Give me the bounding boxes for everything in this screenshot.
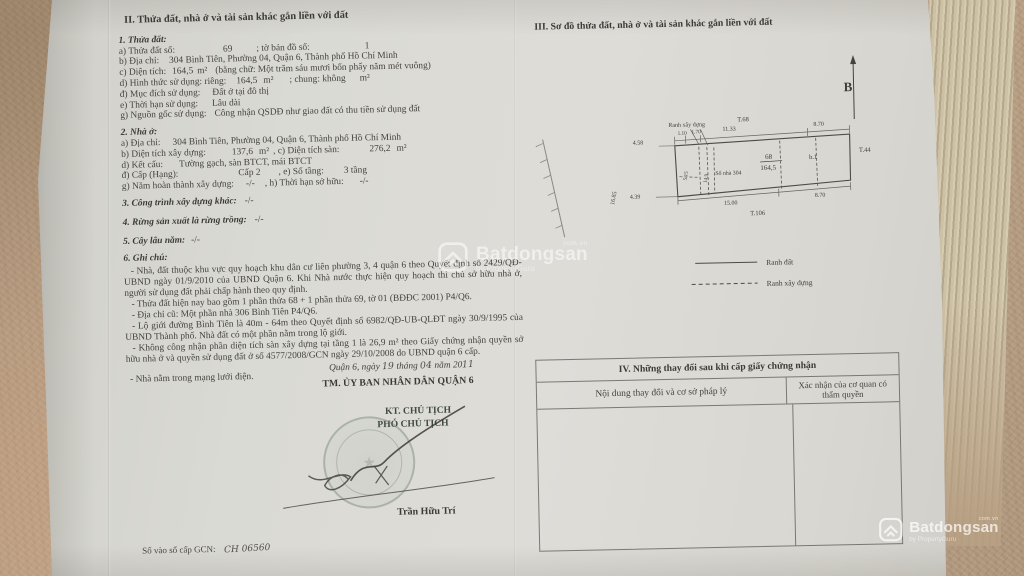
field-label: b) Địa chỉ: [119, 56, 159, 67]
plot-number: 68 [765, 153, 773, 161]
empty-cell-confirmation [793, 402, 902, 545]
field-value: 276,2 [369, 144, 390, 154]
dim: 1.10 [677, 131, 687, 137]
field-label: đ) Cấp (Hạng): [122, 170, 179, 181]
field-label: d) Kết cấu: [121, 160, 163, 171]
field-value: -/- [191, 235, 200, 245]
changes-table: IV. Những thay đổi sau khi cấp giấy chứn… [535, 352, 903, 552]
field-label: , c) Diện tích sàn: [273, 145, 340, 157]
authority-line: TM. ỦY BAN NHÂN DÂN QUẬN 6 [322, 376, 473, 390]
section-perennial: 5. Cây lâu năm:-/- [123, 227, 521, 247]
house-number-label: Số nhà 304 [715, 169, 741, 177]
dim: 15.00 [724, 200, 738, 206]
field-label: g) Nguồn gốc sử dụng: [120, 109, 207, 121]
unit: m² [263, 75, 273, 85]
legend-build-boundary: Ranh xây dựng [767, 278, 813, 288]
field-label: c) Diện tích: [119, 67, 166, 78]
field-label: ; chung: không [289, 74, 345, 85]
dim: 8.70 [813, 122, 824, 128]
parcel-bottom-label: T.106 [750, 210, 766, 217]
field-label: g) Năm hoàn thành xây dựng: [122, 180, 234, 193]
sub-parcel-label: b.1 [809, 154, 817, 161]
field-label: a) Thửa đất số: [119, 45, 175, 56]
field-value: -/- [255, 215, 264, 225]
signature-block: - Nhà nằm trong mạng lưới điện. Quận 6, … [126, 359, 528, 540]
legend-land-boundary: Ranh đất [766, 257, 794, 267]
photo-scene: II. Thửa đất, nhà ở và tài sản khác gắn … [0, 0, 1024, 576]
section-forest: 4. Rừng sản xuất là rừng trồng:-/- [123, 209, 521, 229]
note-item: - Nhà nằm trong mạng lưới điện. [130, 372, 254, 386]
handwritten-signature [277, 393, 510, 518]
plot-area: 164,5 [760, 164, 776, 172]
field-value: -/- [246, 179, 255, 189]
field-value: 164,5 [172, 66, 193, 76]
field-label: , h) Thời hạn sở hữu: [265, 177, 344, 189]
parcel-right-label: T.44 [859, 147, 872, 154]
fold-line-left [108, 0, 111, 576]
signer-name: Trần Hữu Trí [361, 506, 491, 520]
handwritten-gcn-number: CH 06560 [223, 543, 270, 556]
changes-table-body [537, 402, 902, 551]
build-boundary-label: Ranh xây dựng [668, 122, 705, 129]
unit: m² [259, 146, 269, 156]
field-label: , e) Số tầng: [278, 167, 324, 178]
field-value: 137,6 [232, 147, 253, 157]
parcel-top-label: T.68 [737, 116, 749, 123]
field-value: 164,5 [236, 76, 257, 86]
dim: 5.15 [683, 171, 690, 181]
parcel-diagram: B [521, 45, 976, 314]
field-value: Lâu dài [212, 98, 241, 109]
field-label: a) Địa chỉ: [121, 138, 161, 149]
field-value: 1 [365, 41, 370, 51]
dim: 14.9 [703, 173, 710, 183]
dim: 16.85 [610, 191, 618, 205]
field-value: Cấp 2 [238, 168, 260, 178]
dim: 4.39 [630, 195, 641, 201]
column-header-confirmation: Xác nhận của cơ quan có thẩm quyền [786, 375, 899, 403]
field-value: -/- [245, 196, 254, 206]
dim: 8.70 [815, 193, 826, 199]
notes-block: - Nhà, đất thuộc khu vực quy hoạch khu d… [124, 258, 524, 366]
dim: 4.58 [633, 140, 644, 146]
empty-cell-content [537, 404, 796, 550]
handwritten-year: 11 [462, 360, 475, 371]
place-date-line: Quận 6, ngày 19 tháng 04 năm 2011 [329, 360, 474, 374]
field-value: 3 tầng [344, 166, 367, 177]
field-value: Đất ở tại đô thị [212, 86, 269, 97]
unit: m² [197, 66, 207, 76]
column-header-content: Nội dung thay đổi và cơ sở pháp lý [537, 378, 787, 409]
page-left: II. Thửa đất, nhà ở và tài sản khác gắn … [118, 7, 529, 572]
gcn-registry-line: Số vào sổ cấp GCN:CH 06560 [142, 543, 270, 558]
dim: 11.33 [722, 127, 735, 133]
section-other-constructions: 3. Công trình xây dựng khác:-/- [122, 190, 520, 210]
field-value: -/- [360, 177, 369, 187]
handwritten-month: 04 [420, 361, 433, 372]
dim: 1.70 [691, 129, 701, 135]
unit: m² [360, 73, 370, 83]
certificate-document: II. Thửa đất, nhà ở và tài sản khác gắn … [0, 0, 1024, 576]
section-ii-heading: II. Thửa đất, nhà ở và tài sản khác gắn … [124, 7, 516, 27]
handwritten-day: 19 [382, 362, 395, 373]
field-value: 69 [223, 44, 233, 54]
field-label: ; tờ bản đồ số: [256, 42, 310, 53]
north-label: B [843, 79, 852, 94]
unit: m² [396, 143, 406, 153]
